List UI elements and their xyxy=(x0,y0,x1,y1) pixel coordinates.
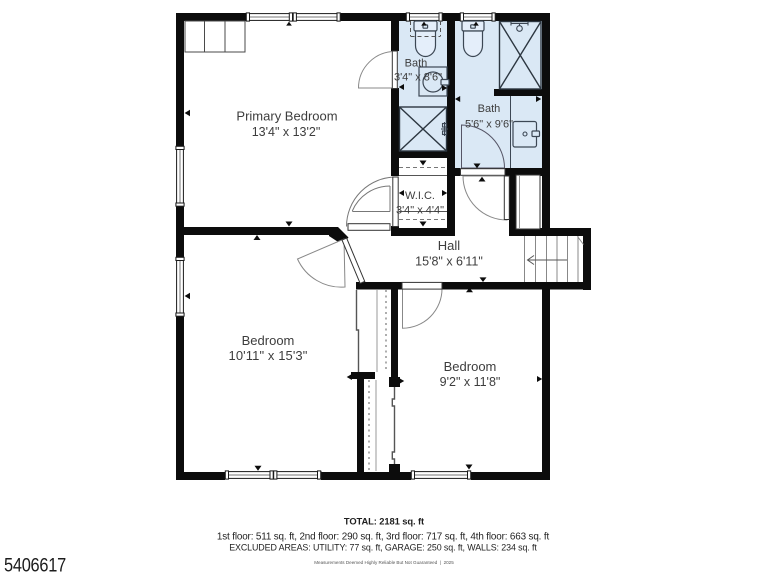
svg-text:Bath: Bath xyxy=(478,103,501,115)
svg-text:13'4" x 13'2": 13'4" x 13'2" xyxy=(252,125,321,139)
svg-text:EXCLUDED AREAS: UTILITY: 77 sq: EXCLUDED AREAS: UTILITY: 77 sq. ft, GARA… xyxy=(229,543,537,553)
svg-text:Bedroom: Bedroom xyxy=(242,333,295,348)
svg-text:3'4" x 4'4": 3'4" x 4'4" xyxy=(396,205,444,217)
svg-text:5'6" x 9'6": 5'6" x 9'6" xyxy=(465,119,513,131)
svg-text:Bath: Bath xyxy=(405,58,428,70)
svg-text:15'8" x 6'11": 15'8" x 6'11" xyxy=(415,255,483,269)
svg-text:Primary Bedroom: Primary Bedroom xyxy=(236,109,337,124)
svg-text:Hall: Hall xyxy=(438,238,461,253)
svg-text:Measurements Deemed Highly Rel: Measurements Deemed Highly Reliable But … xyxy=(314,560,454,565)
svg-text:9'2" x 11'8": 9'2" x 11'8" xyxy=(440,375,501,389)
svg-text:W.I.C.: W.I.C. xyxy=(405,190,435,202)
svg-text:5406617: 5406617 xyxy=(4,554,66,576)
svg-text:3'4" x 8'6": 3'4" x 8'6" xyxy=(394,72,442,84)
svg-text:TOTAL: 2181 sq. ft: TOTAL: 2181 sq. ft xyxy=(344,516,424,527)
svg-text:10'11" x 15'3": 10'11" x 15'3" xyxy=(229,348,308,363)
svg-text:1st floor: 511 sq. ft, 2nd flo: 1st floor: 511 sq. ft, 2nd floor: 290 sq… xyxy=(217,532,550,543)
svg-text:Bedroom: Bedroom xyxy=(444,359,497,374)
